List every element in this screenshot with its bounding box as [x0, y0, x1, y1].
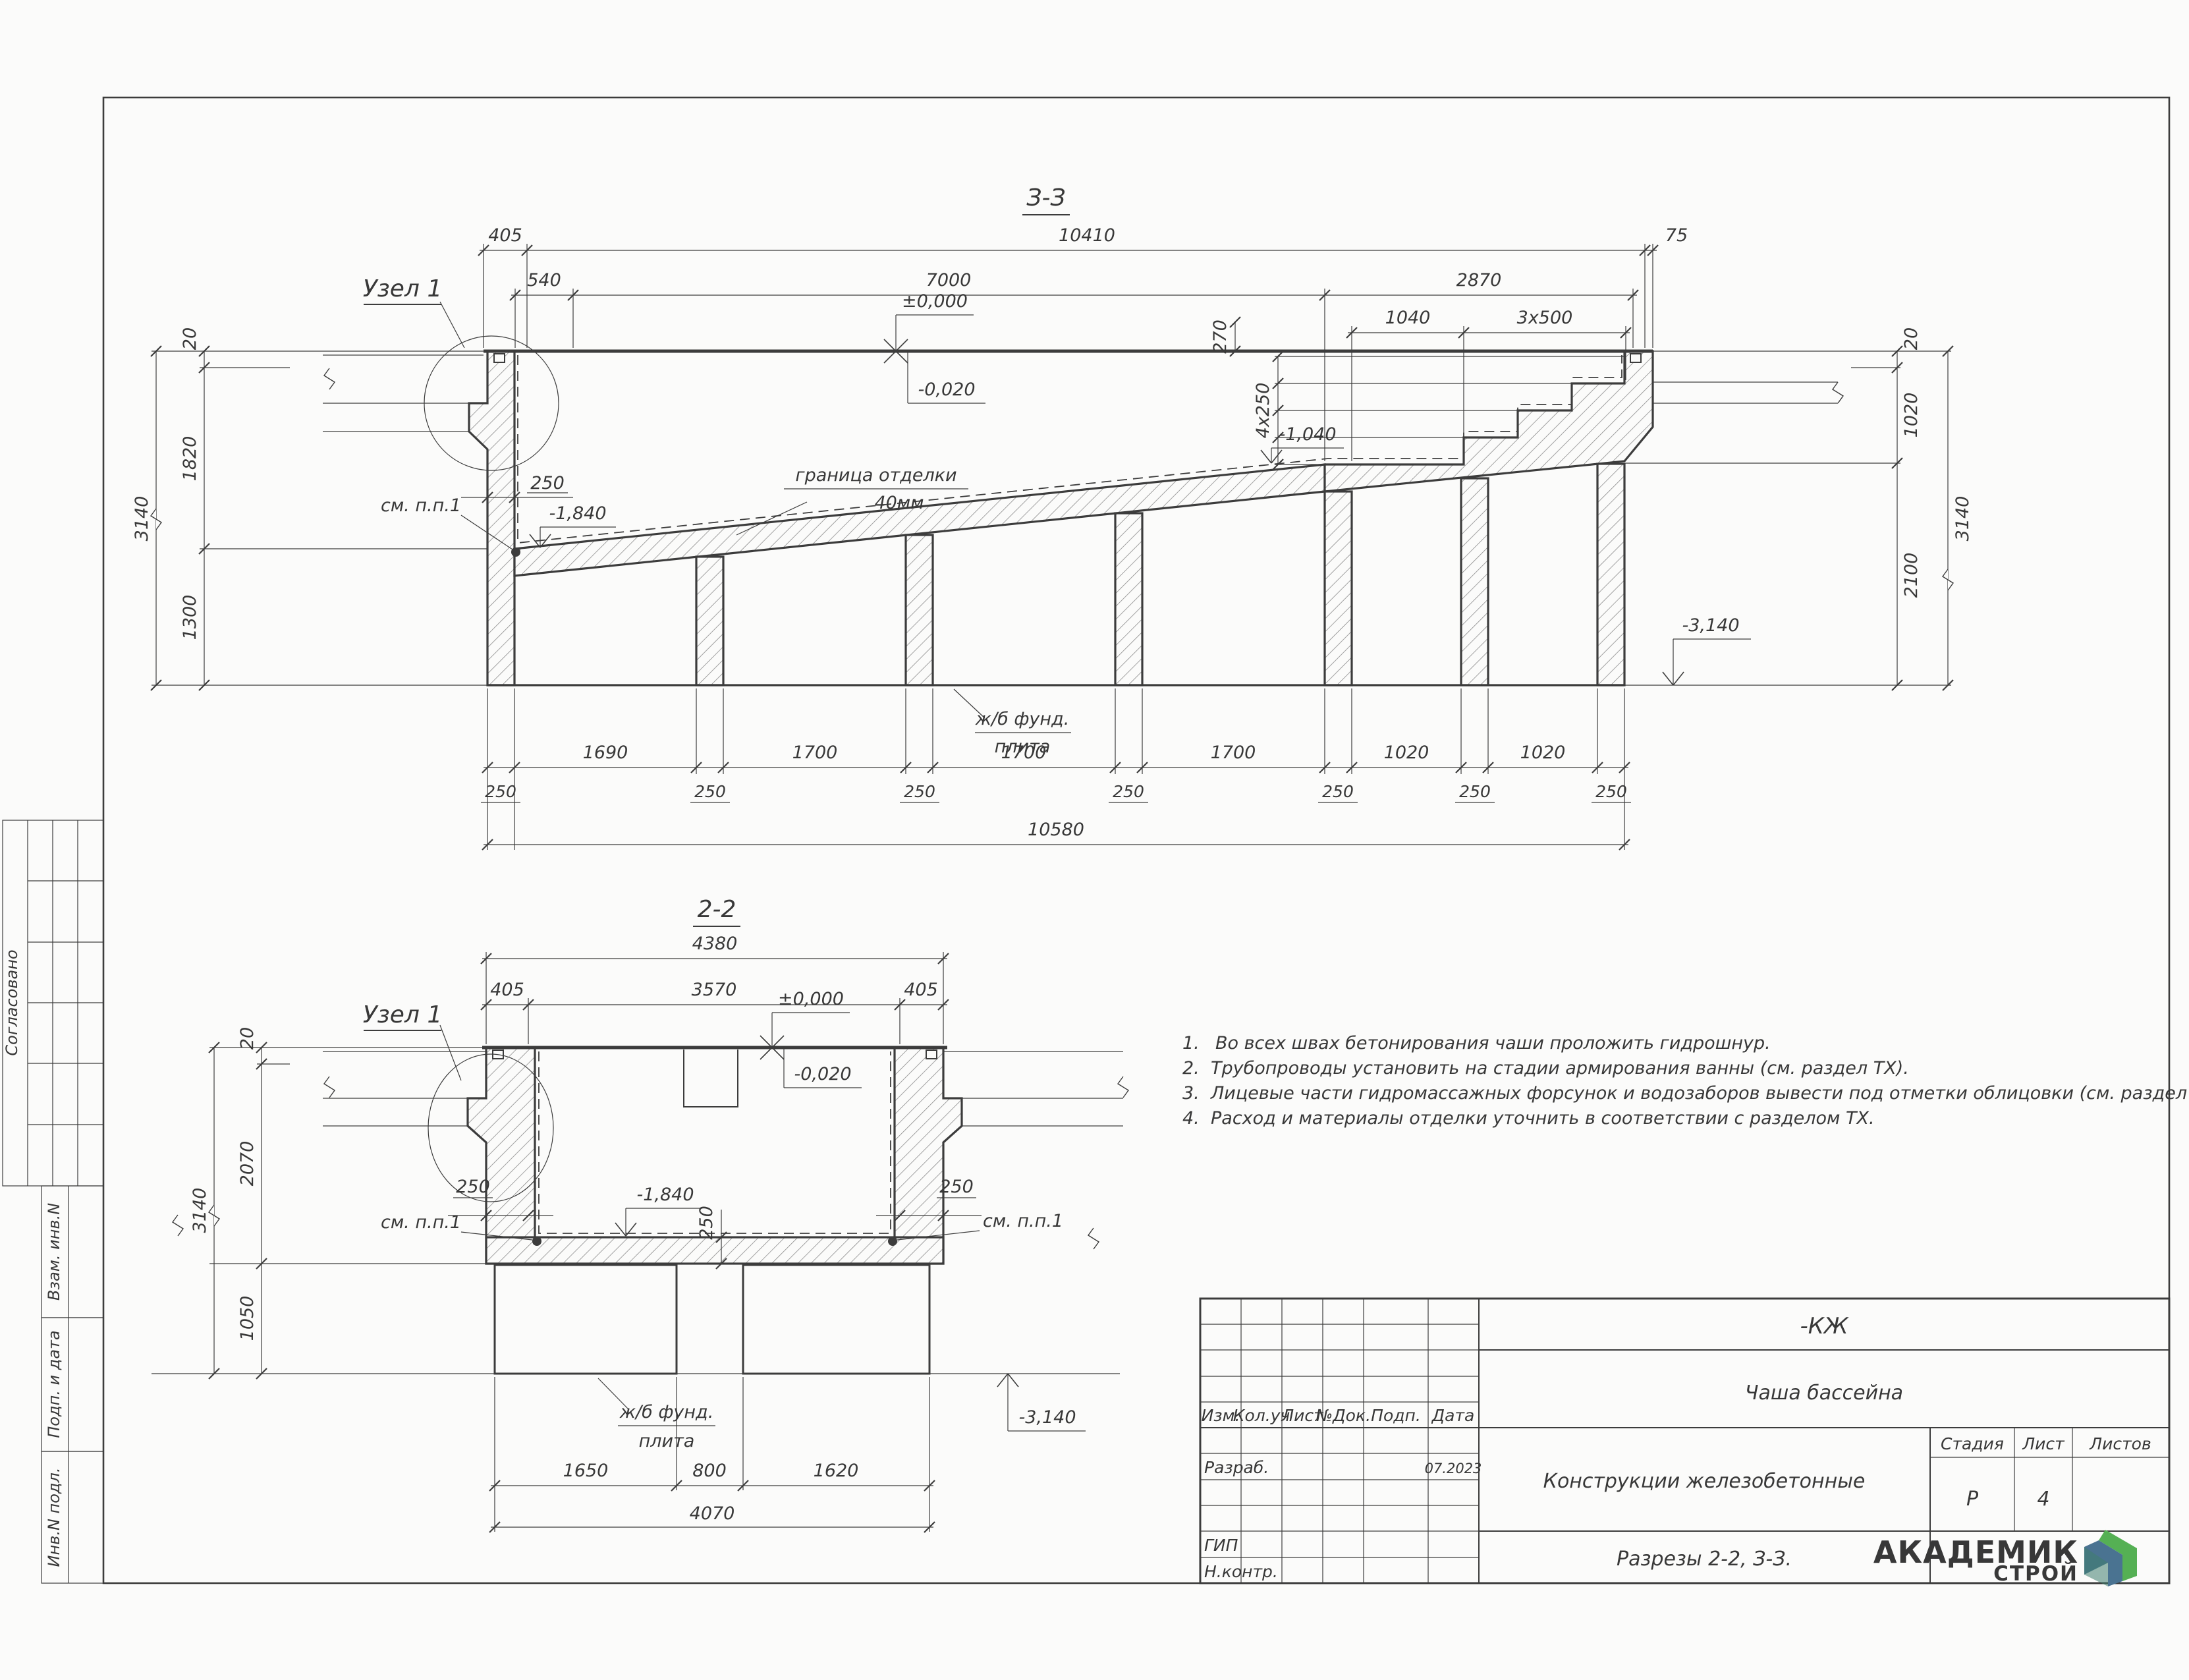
- tb-object: Чаша бассейна: [1745, 1382, 1903, 1405]
- tb-stage-value: Р: [1966, 1488, 1979, 1511]
- s22-wall-250-right: 250: [939, 1177, 974, 1197]
- s33-dim-540: 540: [527, 270, 561, 291]
- s33-dim-7000: 7000: [926, 270, 972, 291]
- note-2-text: Трубопроводы установить на стадии армиро…: [1211, 1058, 1909, 1078]
- stamp-inv: Инв.N подл.: [42, 1451, 103, 1583]
- stamp-podp-label: Подп. и дата: [45, 1330, 63, 1438]
- tb-date: 07.2023: [1425, 1461, 1482, 1476]
- s33-right-wall-keyway: [1630, 354, 1641, 362]
- tb-code: -КЖ: [1800, 1313, 1848, 1339]
- s33-dim-250-4: 250: [1113, 782, 1144, 801]
- tb-doc-title: Конструкции железобетонные: [1543, 1470, 1866, 1493]
- s33-dim-405: 405: [488, 225, 522, 246]
- title-block: Изм. Кол.уч Лист №Док. Подп. Дата Разраб…: [1200, 1299, 2169, 1586]
- s22-dim-left-20: 20: [237, 1027, 258, 1050]
- sheet-frame: [103, 98, 2169, 1583]
- left-stamp-column: Согласовано Взам. инв.N Подп. и дата Инв…: [3, 820, 103, 1583]
- s22-right-wall-keyway: [926, 1050, 937, 1059]
- s33-uzel1-label: Узел 1: [363, 275, 443, 302]
- stamp-podp: Подп. и дата: [42, 1318, 103, 1451]
- s33-dim-left-1820: 1820: [180, 436, 200, 482]
- s33-dim-250-5: 250: [1322, 782, 1354, 801]
- s22-dim-405l: 405: [490, 980, 524, 1000]
- s22-dim-405r: 405: [904, 980, 938, 1000]
- s22-dim-1650: 1650: [563, 1461, 609, 1481]
- s33-dim-10410: 10410: [1059, 225, 1115, 246]
- s33-dim-270: 270: [1210, 320, 1231, 354]
- note-4-num: 4.: [1182, 1108, 1200, 1129]
- s33-left-wall-keyway: [494, 354, 505, 362]
- s22-floor-slab: [486, 1237, 943, 1264]
- s33-dim-left-1300: 1300: [180, 595, 200, 640]
- s33-dim-250-6: 250: [1459, 782, 1491, 801]
- drawing-sheet: Согласовано Взам. инв.N Подп. и дата Инв…: [0, 0, 2189, 1680]
- s33-dim-right-20: 20: [1901, 327, 1922, 350]
- s22-skimmer-niche: [684, 1050, 738, 1107]
- tb-sheet-label: Лист: [2022, 1434, 2065, 1453]
- s33-dim-bottom-0: 1690: [583, 742, 628, 763]
- stamp-inv-label: Инв.N подл.: [45, 1468, 63, 1567]
- note-3-num: 3.: [1182, 1083, 1200, 1104]
- tb-header-podp: Подп.: [1371, 1406, 1421, 1425]
- tb-sheet-value: 4: [2037, 1488, 2049, 1511]
- s33-level-m1040-label: -1,040: [1279, 424, 1336, 445]
- s22-dim-left-3140: 3140: [190, 1188, 210, 1233]
- s22-level-m1840: [615, 1208, 702, 1236]
- s33-dim-250-2: 250: [694, 782, 726, 801]
- tb-row-razrab: Разраб.: [1204, 1458, 1269, 1477]
- s33-dim-3x500: 3x500: [1517, 308, 1573, 328]
- tb-row-nkontr: Н.контр.: [1204, 1562, 1278, 1581]
- stamp-vzam-label: Взам. инв.N: [45, 1203, 63, 1301]
- tb-row-gip: ГИП: [1204, 1536, 1238, 1555]
- section-3-3: З-З 405 10410 75 540 7000 2870 1040 3x50…: [132, 184, 1973, 850]
- s22-foundation-block-left: [495, 1265, 677, 1374]
- s22-fund-label-1: ж/б фунд.: [619, 1402, 714, 1422]
- s33-granica-label-2: 40мм: [874, 493, 924, 513]
- s33-dim-bottom-1: 1700: [792, 742, 838, 763]
- s33-wall-250-label: 250: [530, 473, 565, 493]
- s22-fund-label-2: плита: [639, 1431, 695, 1451]
- s33-dim-4x250: 4x250: [1253, 383, 1273, 439]
- s33-dim-250-7: 250: [1595, 782, 1627, 801]
- s33-level-zero-label: ±0,000: [902, 291, 968, 312]
- s22-smpp1-label-left: см. п.п.1: [381, 1212, 461, 1233]
- tb-header-ndok: №Док.: [1314, 1406, 1371, 1425]
- s22-slab-250-label: 250: [696, 1206, 717, 1240]
- s22-wall-250-left: 250: [456, 1177, 490, 1197]
- s33-dim-10580: 10580: [1028, 820, 1084, 840]
- s22-left-wall: [468, 1048, 535, 1264]
- s33-dim-right-1020: 1020: [1901, 393, 1922, 438]
- s22-right-wall: [895, 1048, 962, 1264]
- s33-dim-left-20: 20: [180, 327, 200, 350]
- notes-block: 1. Во всех швах бетонирования чаши проло…: [1182, 1033, 2189, 1129]
- s33-uzel1-leader: [440, 302, 464, 348]
- s22-dim-left-2070: 2070: [237, 1141, 258, 1187]
- note-4-text: Расход и материалы отделки уточнить в со…: [1211, 1108, 1875, 1129]
- s22-dim-3570: 3570: [692, 980, 737, 1000]
- s22-dim-left-1050: 1050: [237, 1296, 258, 1341]
- s22-dim-4070: 4070: [690, 1503, 735, 1524]
- s33-dim-bottom-5: 1020: [1520, 742, 1566, 763]
- company-logo: АКАДЕМИК СТРОЙ: [1873, 1530, 2137, 1586]
- s22-foundation-block-right: [743, 1265, 929, 1374]
- s22-dim-800: 800: [692, 1461, 727, 1481]
- s22-smpp1-dot-left: [532, 1237, 541, 1246]
- s33-smpp1-label: см. п.п.1: [381, 495, 461, 516]
- s22-level-m1840-label: -1,840: [636, 1185, 694, 1205]
- s22-dim-4380: 4380: [692, 934, 738, 954]
- s22-uzel1-leader: [440, 1025, 461, 1080]
- stamp-soglasovano-label: Согласовано: [3, 949, 21, 1055]
- s33-dim-left-3140: 3140: [132, 496, 152, 542]
- s33-level-zero: [884, 315, 974, 363]
- s33-dim-250-1: 250: [485, 782, 516, 801]
- s33-dim-1040: 1040: [1385, 308, 1431, 328]
- logo-house-icon: [2084, 1530, 2137, 1586]
- stamp-soglasovano: Согласовано: [3, 820, 103, 1186]
- note-3-text: Лицевые части гидромассажных форсунок и …: [1210, 1083, 2189, 1104]
- tb-sheet-title: Разрезы 2-2, З-З.: [1617, 1548, 1792, 1571]
- s33-dim-right-2100: 2100: [1901, 553, 1922, 598]
- tb-header-data: Дата: [1431, 1406, 1475, 1425]
- s33-dim-250-3: 250: [904, 782, 935, 801]
- s22-dim-1620: 1620: [814, 1461, 859, 1481]
- section-2-2: 2-2 4380 405 3570 405 Узел 1 ±0,000 -0,0…: [152, 896, 1128, 1532]
- s33-level-m3140: [1663, 639, 1751, 685]
- logo-sub: СТРОЙ: [1993, 1562, 2078, 1586]
- s33-dim-row-2: [510, 289, 1638, 461]
- s33-dim-bottom-4: 1020: [1384, 742, 1429, 763]
- s22-uzel1-label: Узел 1: [363, 1001, 443, 1028]
- s33-smpp1-dot: [511, 547, 520, 557]
- s33-dim-2870: 2870: [1456, 270, 1502, 291]
- s33-dim-bottom-3: 1700: [1211, 742, 1256, 763]
- s33-dim-row-top: [478, 244, 1658, 348]
- s33-level-m020-label: -0,020: [918, 379, 975, 400]
- tb-sheets-label: Листов: [2089, 1434, 2151, 1453]
- s22-title: 2-2: [698, 896, 736, 923]
- s33-fund-label-1: ж/б фунд.: [975, 709, 1070, 729]
- s33-fund-label-2: плита: [995, 737, 1051, 757]
- tb-stage-label: Стадия: [1941, 1434, 2004, 1453]
- s22-level-zero-label: ±0,000: [778, 989, 844, 1009]
- note-1-text: Во всех швах бетонирования чаши проложит…: [1215, 1033, 1771, 1053]
- s33-title: З-З: [1026, 184, 1065, 211]
- s22-level-zero: [760, 1013, 850, 1059]
- s33-wall-250-dim: [461, 492, 573, 503]
- drawing-canvas: Согласовано Взам. инв.N Подп. и дата Инв…: [0, 0, 2189, 1680]
- stamp-vzam: Взам. инв.N: [42, 1186, 103, 1318]
- note-2-num: 2.: [1182, 1058, 1200, 1078]
- s33-dim-75: 75: [1665, 225, 1688, 246]
- s22-level-m3140-label: -3,140: [1018, 1407, 1076, 1428]
- s33-left-wall: [469, 351, 514, 685]
- s22-level-m020-label: -0,020: [794, 1064, 851, 1084]
- s22-dim-row-2: [481, 998, 949, 1044]
- note-1-num: 1.: [1182, 1033, 1200, 1053]
- s33-level-m1840-label: -1,840: [549, 503, 606, 524]
- s22-smpp1-label-right: см. п.п.1: [983, 1211, 1063, 1231]
- s33-level-m1040: [1261, 448, 1344, 463]
- s33-dim-right-3140: 3140: [1953, 496, 1973, 542]
- s33-granica-label-1: граница отделки: [795, 465, 956, 486]
- s33-left-dims: [151, 346, 487, 690]
- s22-smpp1-dot-right: [888, 1237, 897, 1246]
- s33-level-m3140-label: -3,140: [1682, 615, 1739, 636]
